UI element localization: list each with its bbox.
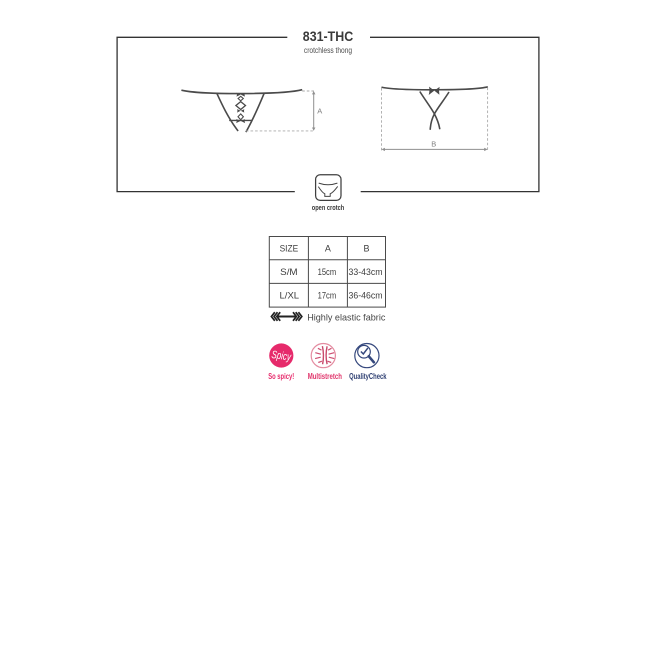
svg-text:Highly elastic fabric: Highly elastic fabric [307,312,385,323]
svg-text:B: B [431,140,436,149]
svg-text:So spicy!: So spicy! [268,372,294,381]
svg-text:A: A [325,243,331,253]
svg-text:S/M: S/M [280,267,298,277]
svg-text:A: A [317,107,322,116]
svg-text:L/XL: L/XL [280,291,300,301]
svg-text:36-46cm: 36-46cm [349,291,383,301]
svg-text:17cm: 17cm [318,291,337,301]
svg-text:B: B [363,243,369,253]
svg-text:33-43cm: 33-43cm [349,267,383,277]
svg-text:crotchless thong: crotchless thong [304,46,352,55]
svg-text:Multistretch: Multistretch [308,372,342,381]
svg-text:831-THC: 831-THC [303,28,353,44]
svg-text:15cm: 15cm [318,267,337,277]
svg-text:SIZE: SIZE [280,243,299,253]
svg-text:QualityCheck: QualityCheck [349,372,387,381]
svg-text:open crotch: open crotch [312,205,345,212]
